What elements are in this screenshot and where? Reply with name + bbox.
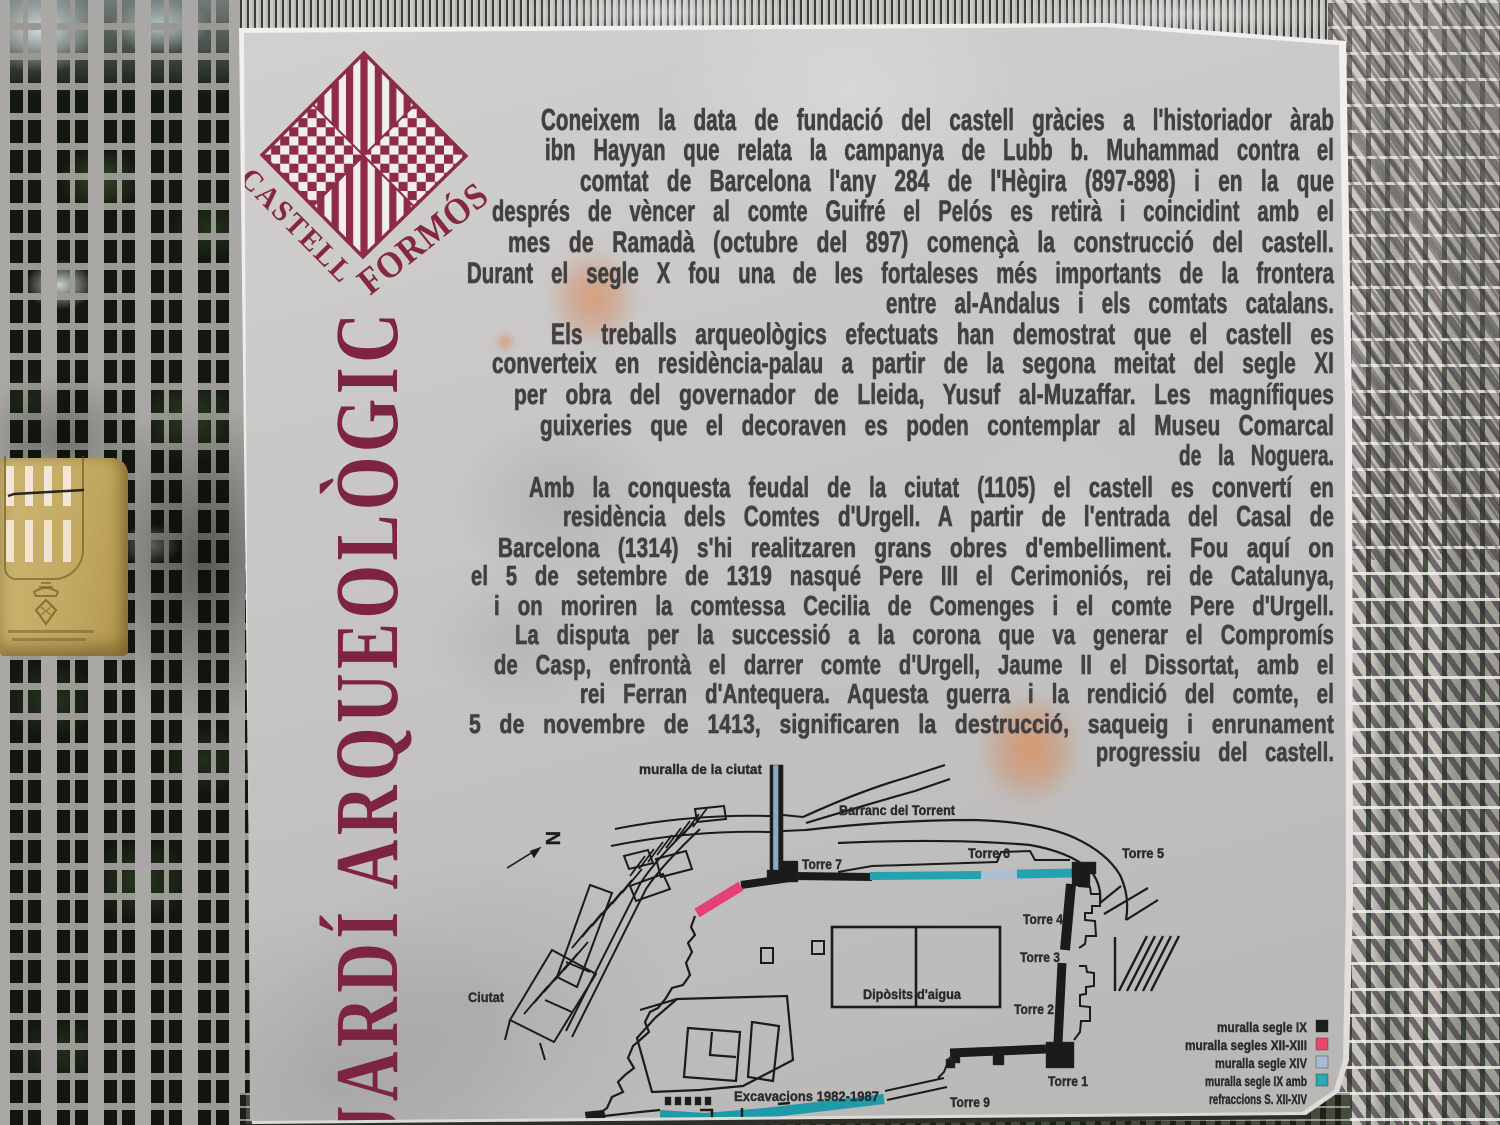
svg-text:Torre 4: Torre 4 [1023,912,1063,927]
svg-text:d'aigua: d'aigua [917,987,961,1002]
svg-text:muralla segle IX amb: muralla segle IX amb [1205,1074,1307,1089]
svg-text:refraccions S. XII-XIV: refraccions S. XII-XIV [1209,1092,1307,1107]
svg-text:Torre 1: Torre 1 [1048,1074,1088,1089]
svg-text:Torre 2: Torre 2 [1014,1002,1054,1017]
svg-text:muralla segle IX: muralla segle IX [1217,1020,1307,1035]
svg-text:Torre 6: Torre 6 [968,846,1010,861]
svg-text:Torre 7: Torre 7 [802,857,842,872]
svg-text:Torre 9: Torre 9 [950,1095,990,1110]
svg-text:N: N [541,831,563,845]
svg-text:muralla segles XII-XIII: muralla segles XII-XIII [1185,1038,1307,1053]
svg-text:muralla de la ciutat: muralla de la ciutat [639,762,763,777]
svg-text:Ciutat: Ciutat [468,990,504,1005]
svg-text:Torre 3: Torre 3 [1020,950,1060,965]
svg-text:Excavacions 1982-1987: Excavacions 1982-1987 [734,1089,879,1104]
svg-text:Dipòsits: Dipòsits [863,987,913,1002]
svg-text:Torre 5: Torre 5 [1122,846,1164,861]
svg-text:Barranc del Torrent: Barranc del Torrent [839,803,955,818]
svg-text:muralla segle XIV: muralla segle XIV [1215,1056,1307,1071]
